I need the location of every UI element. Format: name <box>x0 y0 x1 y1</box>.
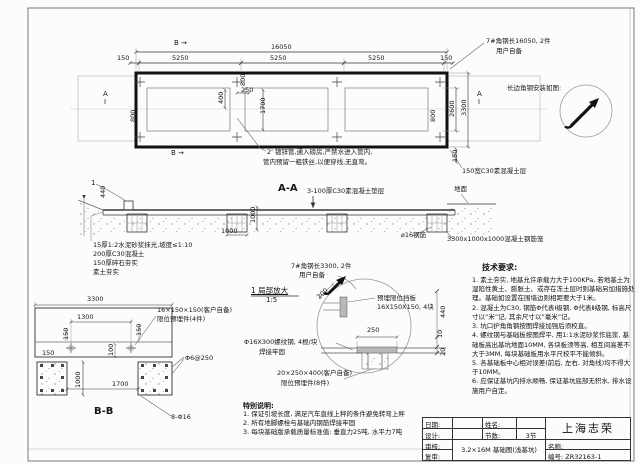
special-notes-list: 1. 保证引坡长度, 满足汽车直线上秤的条件避免转弯上秤2. 所有地脚螺栓与基础… <box>243 410 435 438</box>
title-block: 日期: 姓名: 上海志荣 设计: 节数: 3节 审核: 3.2×16M 基础图(… <box>422 417 631 461</box>
title-block-title-label: 名称: <box>546 440 630 450</box>
special-note-item: 3. 每块基础版承载质量标准值: 垂直力25吨, 水平力7吨 <box>243 428 435 437</box>
tech-requirements-title: 技术要求: <box>482 262 517 273</box>
special-note-item: 1. 保证引坡长度, 满足汽车直线上秤的条件避免转弯上秤 <box>243 410 435 419</box>
tech-requirement-item: 2. 混凝土为C30, 钢筋Φ代表Ⅰ级钢, Φ代表Ⅱ级钢, 标高尺寸以“米”记,… <box>472 304 635 322</box>
detail-1-linework <box>251 276 446 379</box>
tech-requirements-list: 1. 素土夯实, 地基允许承载力大于100KPa, 若地基土为湿陷性黄土、膨胀土… <box>472 276 635 396</box>
title-block-designer-value <box>453 429 483 440</box>
title-block-date-label: 日期: <box>423 418 453 429</box>
plan-view-linework <box>70 43 612 168</box>
title-block-number-value: 编号: ZR32163-1 <box>546 450 630 460</box>
title-block-name-value <box>517 418 546 429</box>
cad-drawing-sheet: B →160501505250525052501507#角钢长16050, 2件… <box>0 0 640 464</box>
section-aa-linework <box>78 184 496 241</box>
title-block-reviewer-label: 复审: <box>423 450 453 460</box>
tech-requirement-item: 6. 应保证基坑内排水顺畅, 保证基坑底部无积水, 排水设施用户自定。 <box>472 377 635 395</box>
title-block-designer-label: 设计: <box>423 429 453 440</box>
title-block-sections-label: 节数: <box>483 429 517 440</box>
title-block-drawing-title: 3.2×16M 基础图(浅基坑) <box>453 440 546 460</box>
title-block-sections-value: 3节 <box>517 429 546 440</box>
title-block-date-value <box>453 418 483 429</box>
tech-requirement-item: 4. 螺纹钢与基础板按图焊平, 用1:1水泥砂浆作底浆, 基础板高出基坑地面10… <box>472 331 635 359</box>
section-bb-linework <box>35 302 184 416</box>
title-block-name-label: 姓名: <box>483 418 517 429</box>
tech-requirement-item: 5. 各基础板中心相对误差(前后, 左右, 对角线)均不得大于10MM。 <box>472 359 635 377</box>
tech-requirement-item: 3. 坑口护角角钢按图焊接加强后须校直。 <box>472 322 635 331</box>
tech-requirement-item: 1. 素土夯实, 地基允许承载力大于100KPa, 若地基土为湿陷性黄土、膨胀土… <box>472 276 635 304</box>
title-block-checker-label: 审核: <box>423 440 453 450</box>
title-block-company: 上海志荣 <box>546 418 630 440</box>
